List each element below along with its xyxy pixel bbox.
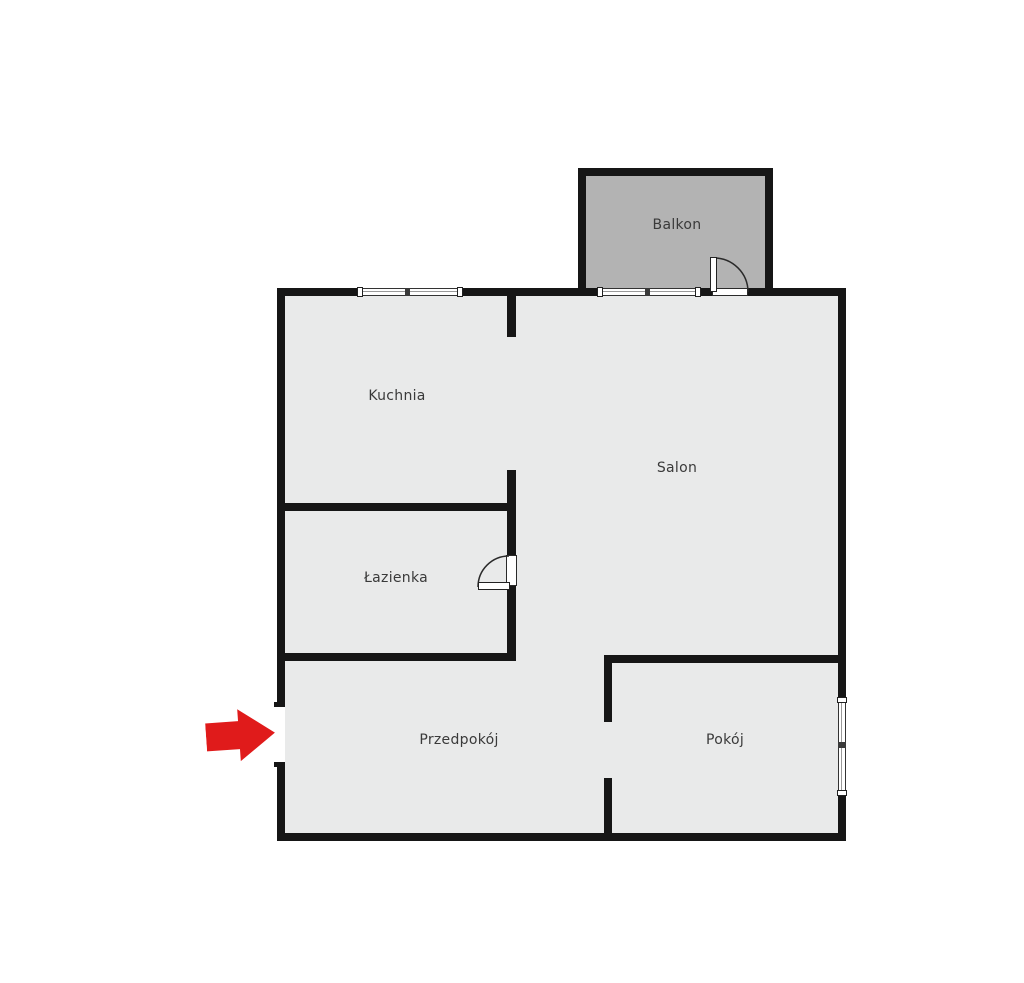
room-label-kuchnia: Kuchnia (368, 388, 425, 404)
apartment-floor (285, 296, 838, 833)
wall-kitchen-bathroom (285, 503, 516, 511)
entrance-arrow-icon (204, 706, 278, 765)
wall-kitchen-salon-stub (507, 296, 516, 337)
window-cap (357, 287, 363, 297)
window-divider (838, 742, 846, 748)
window-cap (457, 287, 463, 297)
window-glass (357, 288, 463, 296)
window-divider (645, 288, 650, 296)
exterior-wall-bottom (277, 833, 846, 841)
entrance-jamb-bottom (274, 762, 285, 767)
entrance-jamb-top (274, 702, 285, 707)
window-cap (597, 287, 603, 297)
red-right-arrow (204, 706, 278, 765)
wall-bathroom-hallway (285, 653, 516, 661)
room-label-przedpokoj: Przedpokój (419, 732, 498, 748)
window-cap (837, 697, 847, 703)
balcony-door-leaf (710, 257, 717, 292)
wall-hallway-pokoj-lower (604, 778, 612, 833)
kitchen-window (357, 287, 463, 297)
window-midline (359, 291, 461, 292)
window-cap (837, 790, 847, 796)
balcony-wall-left (578, 168, 586, 296)
balcony-floor (586, 176, 765, 296)
balcony-wall-right (765, 168, 773, 296)
room-label-balkon: Balkon (653, 217, 702, 233)
exterior-wall-left-lower (277, 762, 285, 841)
balcony-window (597, 287, 701, 297)
wall-salon-pokoj (604, 655, 838, 663)
pokoj-window (837, 697, 847, 796)
balcony-wall-top (578, 168, 773, 176)
room-label-salon: Salon (657, 460, 697, 476)
wall-hallway-pokoj-upper (604, 655, 612, 722)
room-label-lazienka: Łazienka (364, 570, 428, 586)
window-cap (695, 287, 701, 297)
bathroom-door-leaf (478, 582, 510, 590)
balcony-door-threshold (712, 288, 748, 296)
window-divider (405, 288, 410, 296)
exterior-wall-left-upper (277, 288, 285, 707)
floor-plan: Balkon Kuchnia Salon Łazienka Przedpokój… (0, 0, 1024, 983)
room-label-pokoj: Pokój (706, 732, 744, 748)
